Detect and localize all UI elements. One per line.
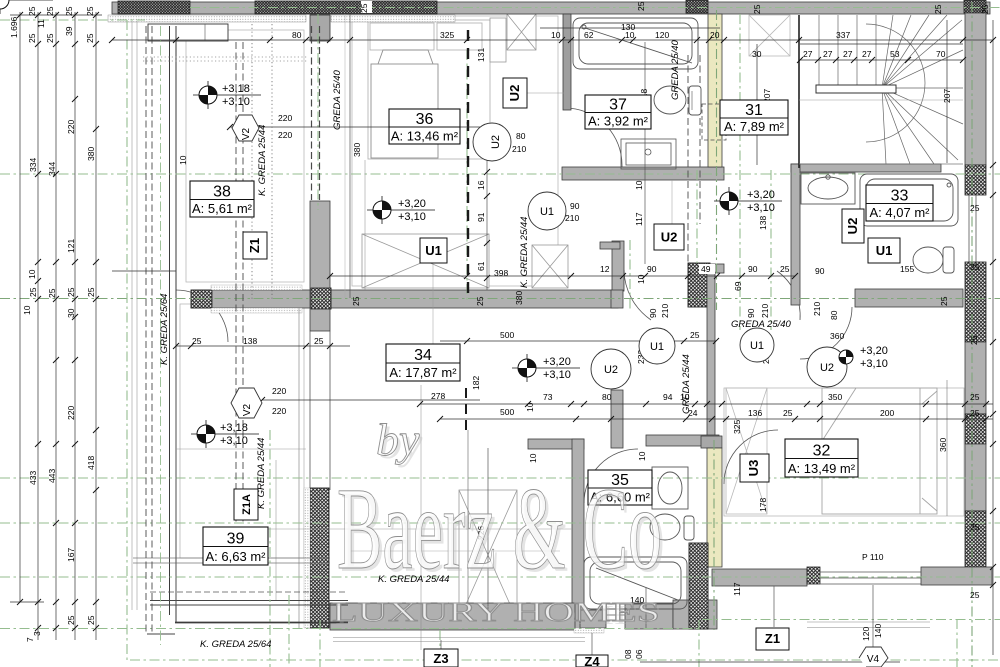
svg-text:+3,10: +3,10	[220, 435, 248, 447]
svg-text:120: 120	[655, 30, 669, 40]
svg-text:167: 167	[66, 548, 76, 562]
svg-text:210: 210	[812, 302, 822, 316]
svg-text:121: 121	[66, 239, 76, 253]
svg-text:27: 27	[843, 49, 853, 59]
svg-text:10: 10	[634, 180, 644, 190]
svg-text:25: 25	[47, 288, 57, 298]
svg-text:A: 4,07 m²: A: 4,07 m²	[870, 205, 931, 220]
svg-text:12: 12	[600, 264, 610, 274]
svg-text:117: 117	[732, 582, 742, 596]
svg-text:25: 25	[192, 336, 202, 346]
svg-text:+3,18: +3,18	[220, 422, 248, 434]
svg-text:80: 80	[602, 392, 612, 402]
svg-text:10: 10	[178, 155, 188, 165]
svg-text:+3,10: +3,10	[747, 202, 775, 214]
svg-text:Z4: Z4	[584, 654, 600, 667]
svg-text:K. GREDA 25/44: K. GREDA 25/44	[519, 217, 530, 288]
svg-text:+3,10: +3,10	[398, 211, 426, 223]
svg-text:25: 25	[86, 615, 96, 625]
svg-text:90: 90	[748, 264, 758, 274]
svg-text:25: 25	[27, 6, 37, 16]
svg-text:25: 25	[980, 4, 990, 14]
svg-text:by: by	[376, 414, 420, 465]
svg-text:30: 30	[66, 308, 76, 318]
svg-text:61: 61	[476, 261, 486, 271]
svg-text:25: 25	[939, 296, 949, 306]
svg-text:90: 90	[746, 308, 756, 318]
svg-text:V4: V4	[867, 654, 880, 665]
svg-text:U1: U1	[425, 243, 442, 258]
svg-text:U2: U2	[820, 362, 834, 374]
svg-text:16: 16	[476, 180, 486, 190]
svg-text:130: 130	[621, 22, 635, 32]
svg-text:25: 25	[351, 296, 361, 306]
svg-text:25: 25	[86, 287, 96, 297]
svg-text:34: 34	[414, 347, 432, 364]
svg-text:380: 380	[86, 147, 96, 161]
svg-text:38: 38	[213, 184, 231, 201]
svg-text:73: 73	[543, 392, 553, 402]
svg-text:53: 53	[890, 49, 900, 59]
svg-text:210: 210	[660, 304, 670, 318]
svg-text:90: 90	[815, 266, 825, 276]
svg-text:120: 120	[861, 627, 871, 641]
svg-text:325: 325	[732, 420, 742, 434]
svg-text:U2: U2	[507, 85, 522, 102]
svg-text:70: 70	[936, 49, 946, 59]
svg-text:398: 398	[494, 268, 508, 278]
svg-text:25: 25	[970, 408, 980, 418]
svg-text:500: 500	[500, 407, 514, 417]
svg-text:131: 131	[476, 48, 486, 62]
svg-text:500: 500	[500, 330, 514, 340]
svg-text:39: 39	[227, 531, 245, 548]
svg-text:U2: U2	[845, 218, 860, 235]
svg-text:350: 350	[828, 392, 842, 402]
svg-text:337: 337	[836, 30, 850, 40]
svg-text:V2: V2	[241, 127, 252, 140]
svg-text:10: 10	[528, 453, 538, 463]
svg-text:27: 27	[823, 49, 833, 59]
svg-text:210: 210	[760, 304, 770, 318]
svg-text:25: 25	[780, 264, 790, 274]
svg-text:220: 220	[278, 130, 292, 140]
svg-text:U1: U1	[876, 243, 893, 258]
svg-text:Z3: Z3	[433, 651, 448, 666]
svg-text:20: 20	[710, 30, 720, 40]
svg-text:25: 25	[66, 287, 76, 297]
svg-text:90: 90	[570, 201, 580, 211]
svg-text:27: 27	[862, 49, 872, 59]
svg-text:25: 25	[64, 6, 74, 16]
svg-text:25: 25	[970, 262, 980, 272]
svg-text:80: 80	[516, 131, 526, 141]
svg-text:25: 25	[475, 296, 485, 306]
svg-text:37: 37	[609, 97, 627, 114]
svg-text:39: 39	[64, 26, 74, 36]
svg-text:207: 207	[942, 89, 952, 103]
svg-text:+3,10: +3,10	[222, 96, 250, 108]
svg-text:25: 25	[85, 33, 95, 43]
svg-text:25: 25	[636, 1, 646, 11]
svg-text:A: 13,49 m²: A: 13,49 m²	[788, 461, 856, 476]
svg-text:U1: U1	[750, 340, 764, 352]
svg-text:10: 10	[637, 451, 647, 461]
svg-text:25: 25	[45, 33, 55, 43]
svg-text:25: 25	[783, 408, 793, 418]
svg-text:25: 25	[85, 6, 95, 16]
svg-text:418: 418	[86, 456, 96, 470]
svg-text:433: 433	[28, 471, 38, 485]
svg-text:P 110: P 110	[862, 552, 884, 562]
svg-text:220: 220	[66, 120, 76, 134]
svg-text:210: 210	[512, 144, 526, 154]
svg-text:GREDA 25/44: GREDA 25/44	[681, 354, 692, 414]
svg-text:138: 138	[243, 336, 257, 346]
svg-text:155: 155	[900, 264, 914, 274]
svg-text:200: 200	[880, 408, 894, 418]
svg-text:Z1: Z1	[247, 238, 262, 253]
svg-text:Z1A: Z1A	[241, 494, 253, 515]
svg-text:36: 36	[416, 111, 434, 128]
svg-text:A: 6,63 m²: A: 6,63 m²	[206, 549, 267, 564]
svg-text:+3,20: +3,20	[543, 356, 571, 368]
svg-text:A: 3,92 m²: A: 3,92 m²	[588, 114, 649, 129]
svg-text:A: 13,46 m²: A: 13,46 m²	[391, 129, 459, 144]
svg-text:V2: V2	[242, 403, 253, 416]
svg-text:210: 210	[565, 213, 579, 223]
svg-text:94: 94	[663, 392, 673, 402]
svg-text:25: 25	[28, 287, 38, 297]
svg-text:30: 30	[752, 49, 762, 59]
svg-text:80: 80	[292, 30, 302, 40]
svg-text:25: 25	[970, 203, 980, 213]
svg-text:A: 17,87 m²: A: 17,87 m²	[389, 365, 457, 380]
svg-text:220: 220	[278, 113, 292, 123]
svg-text:220: 220	[66, 406, 76, 420]
svg-text:27: 27	[803, 49, 813, 59]
svg-text:25: 25	[66, 615, 76, 625]
svg-text:220: 220	[272, 406, 286, 416]
svg-text:10: 10	[551, 30, 561, 40]
svg-text:25: 25	[45, 6, 55, 16]
svg-text:25: 25	[969, 335, 979, 345]
svg-text:10: 10	[22, 305, 32, 315]
svg-text:10: 10	[636, 274, 646, 284]
svg-text:LUXURY HOMES: LUXURY HOMES	[332, 597, 660, 627]
svg-text:80: 80	[829, 310, 839, 320]
svg-text:278: 278	[431, 391, 445, 401]
svg-text:+3,20: +3,20	[860, 345, 888, 357]
svg-text:10: 10	[525, 402, 535, 412]
svg-text:U2: U2	[490, 135, 502, 149]
svg-text:32: 32	[813, 443, 831, 460]
svg-text:33: 33	[891, 188, 909, 205]
svg-text:69: 69	[733, 281, 743, 291]
svg-text:K. GREDA 25/64: K. GREDA 25/64	[200, 639, 271, 650]
svg-text:K. GREDA 25/64: K. GREDA 25/64	[159, 294, 170, 365]
svg-text:25: 25	[933, 4, 943, 14]
svg-text:25: 25	[970, 392, 980, 402]
svg-text:K. GREDA 25/44: K. GREDA 25/44	[256, 438, 267, 509]
svg-text:344: 344	[47, 162, 57, 176]
svg-text:+3,10: +3,10	[543, 369, 571, 381]
svg-text:+3,18: +3,18	[222, 83, 250, 95]
svg-text:178: 178	[758, 498, 768, 512]
svg-text:62: 62	[584, 30, 594, 40]
svg-text:91: 91	[476, 212, 486, 222]
svg-text:7: 7	[25, 637, 35, 642]
svg-text:90: 90	[648, 308, 658, 318]
svg-text:25: 25	[752, 4, 762, 14]
svg-text:140: 140	[873, 624, 883, 638]
svg-text:U1: U1	[650, 341, 664, 353]
svg-text:380: 380	[352, 143, 362, 157]
svg-text:25: 25	[27, 33, 37, 43]
svg-text:443: 443	[47, 469, 57, 483]
svg-text:K. GREDA 25/44: K. GREDA 25/44	[257, 125, 268, 196]
svg-text:A: 5,61 m²: A: 5,61 m²	[192, 201, 253, 216]
svg-text:25: 25	[970, 522, 980, 532]
svg-text:+3,10: +3,10	[860, 358, 888, 370]
svg-text:25: 25	[970, 590, 980, 600]
svg-text:U3: U3	[746, 460, 761, 477]
svg-text:3: 3	[32, 631, 42, 636]
svg-text:1.696: 1.696	[9, 16, 19, 38]
svg-text:U1: U1	[540, 206, 554, 218]
svg-text:A: 7,89 m²: A: 7,89 m²	[724, 119, 785, 134]
svg-text:Z1: Z1	[765, 631, 780, 646]
svg-text:90: 90	[647, 264, 657, 274]
svg-text:10: 10	[27, 269, 37, 279]
svg-text:25: 25	[690, 330, 700, 340]
svg-text:GREDA 25/40: GREDA 25/40	[731, 319, 792, 330]
svg-text:25: 25	[314, 336, 324, 346]
svg-text:06: 06	[634, 649, 644, 659]
svg-text:U2: U2	[661, 230, 678, 245]
svg-text:Baerz & Co: Baerz & Co	[337, 463, 662, 594]
svg-text:08: 08	[623, 649, 633, 659]
svg-text:+3,20: +3,20	[398, 198, 426, 210]
svg-text:360: 360	[830, 331, 844, 341]
svg-text:220: 220	[272, 386, 286, 396]
svg-text:325: 325	[440, 30, 454, 40]
svg-text:25: 25	[359, 3, 369, 13]
svg-text:GREDA 25/40: GREDA 25/40	[332, 69, 343, 130]
svg-text:GREDA 25/40: GREDA 25/40	[670, 39, 681, 100]
svg-text:11: 11	[36, 19, 46, 28]
svg-text:334: 334	[28, 158, 38, 172]
svg-text:138: 138	[758, 216, 768, 230]
svg-text:U2: U2	[604, 364, 618, 376]
svg-text:360: 360	[938, 438, 948, 452]
svg-text:+3,20: +3,20	[747, 189, 775, 201]
svg-text:380: 380	[514, 291, 524, 305]
svg-text:117: 117	[634, 212, 644, 226]
svg-text:31: 31	[745, 102, 763, 119]
svg-text:136: 136	[748, 408, 762, 418]
svg-text:49: 49	[701, 264, 711, 274]
svg-text:182: 182	[471, 376, 481, 390]
